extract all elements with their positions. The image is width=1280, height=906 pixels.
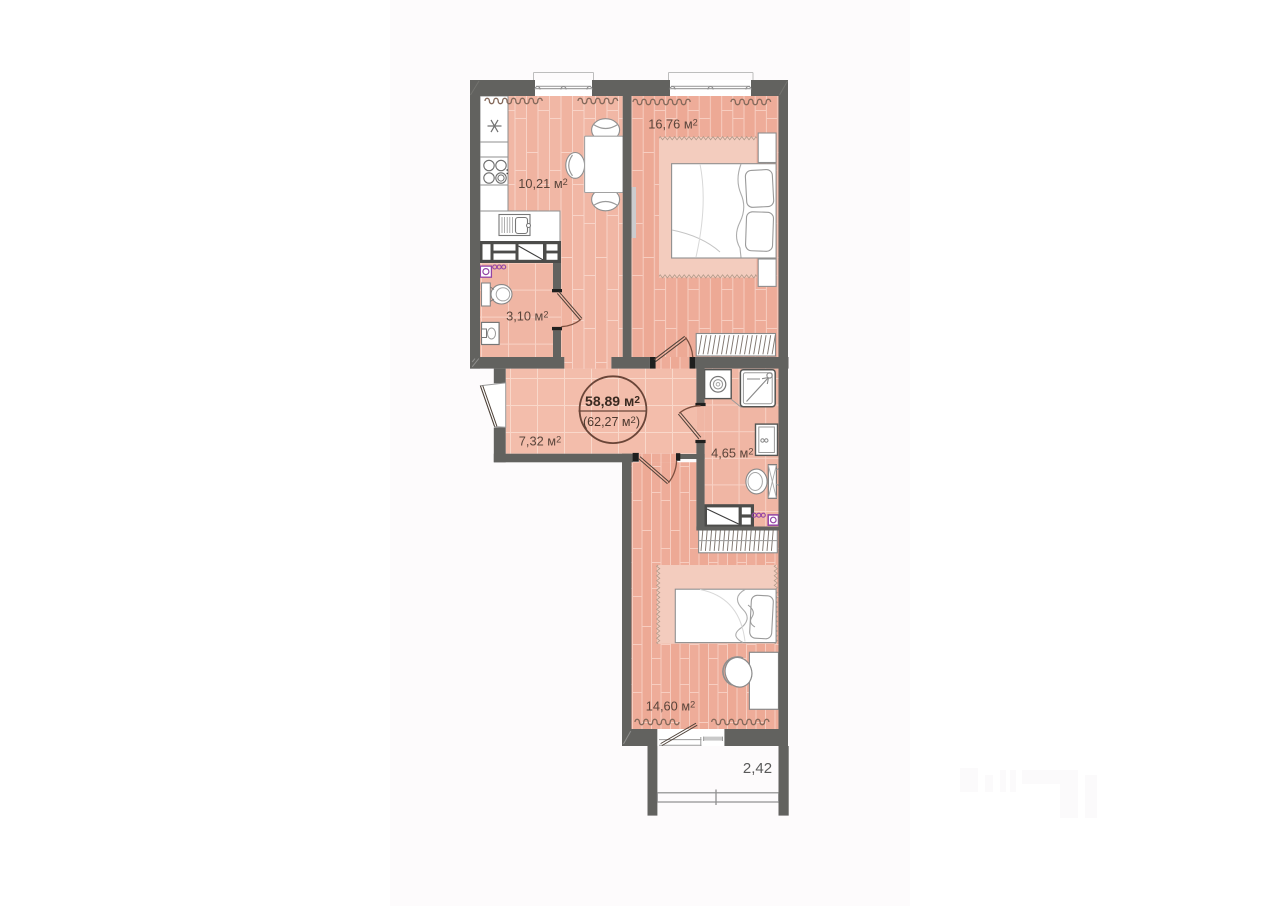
svg-text:3,10 м2: 3,10 м2 [506,309,548,324]
svg-text:4,65 м2: 4,65 м2 [711,446,753,461]
svg-text:7,32 м2: 7,32 м2 [519,434,561,449]
svg-text:2,42: 2,42 [743,760,772,777]
svg-text:14,60 м2: 14,60 м2 [646,699,696,714]
svg-text:58,89 м2: 58,89 м2 [585,393,640,409]
svg-text:16,76 м2: 16,76 м2 [648,117,698,132]
svg-text:10,21 м2: 10,21 м2 [518,176,568,191]
